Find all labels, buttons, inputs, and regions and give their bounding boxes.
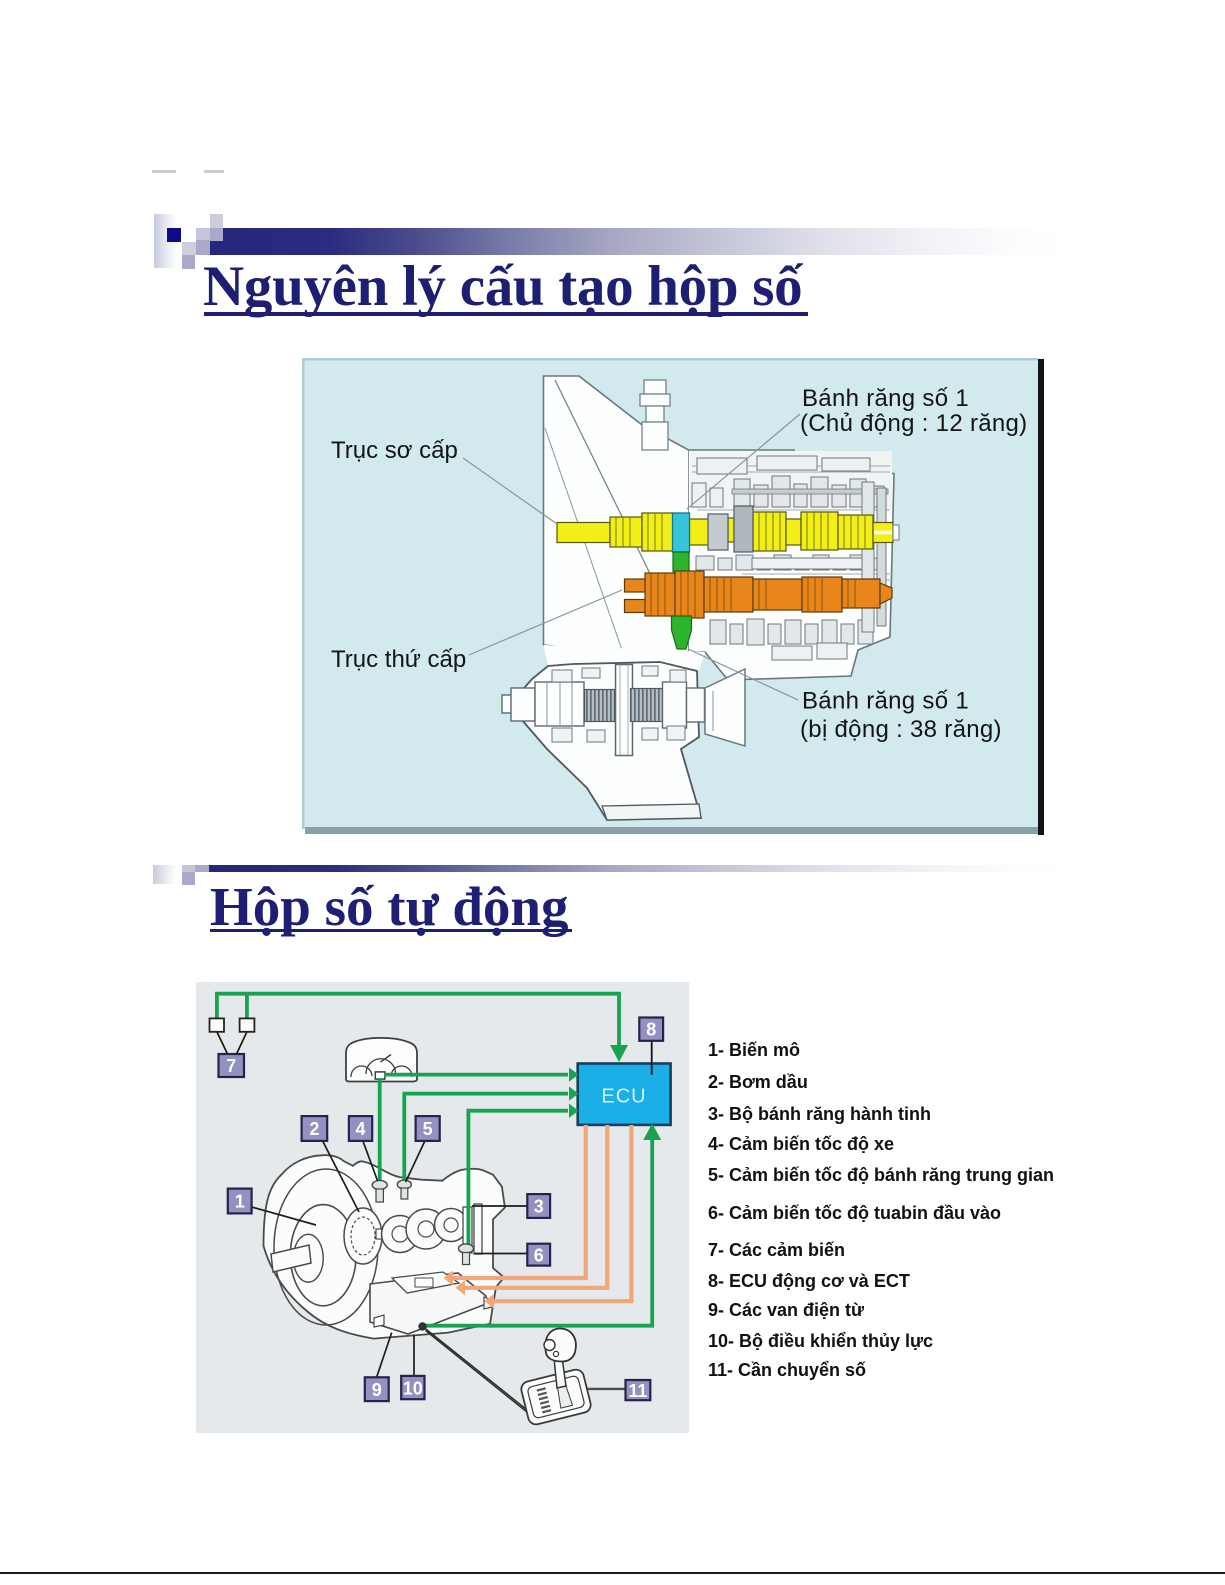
- svg-text:11: 11: [628, 1381, 647, 1401]
- svg-text:Bánh răng số 1: Bánh răng số 1: [802, 688, 969, 715]
- svg-text:(bị động : 38 răng): (bị động : 38 răng): [800, 716, 1002, 743]
- svg-text:4: 4: [355, 1119, 365, 1139]
- svg-text:Trục sơ cấp: Trục sơ cấp: [331, 437, 458, 464]
- svg-text:ECU: ECU: [601, 1086, 646, 1108]
- svg-text:9: 9: [372, 1380, 382, 1400]
- svg-text:8: 8: [646, 1020, 656, 1040]
- svg-text:7: 7: [226, 1056, 236, 1076]
- svg-text:5: 5: [423, 1119, 433, 1139]
- svg-text:6: 6: [534, 1245, 544, 1265]
- svg-text:10: 10: [403, 1378, 423, 1398]
- svg-text:(Chủ động : 12 răng): (Chủ động : 12 răng): [800, 410, 1027, 437]
- svg-text:2: 2: [309, 1119, 319, 1139]
- svg-text:1: 1: [235, 1192, 245, 1212]
- svg-text:Trục thứ cấp: Trục thứ cấp: [331, 646, 466, 673]
- svg-text:Bánh răng số 1: Bánh răng số 1: [802, 385, 969, 412]
- svg-text:3: 3: [534, 1197, 544, 1217]
